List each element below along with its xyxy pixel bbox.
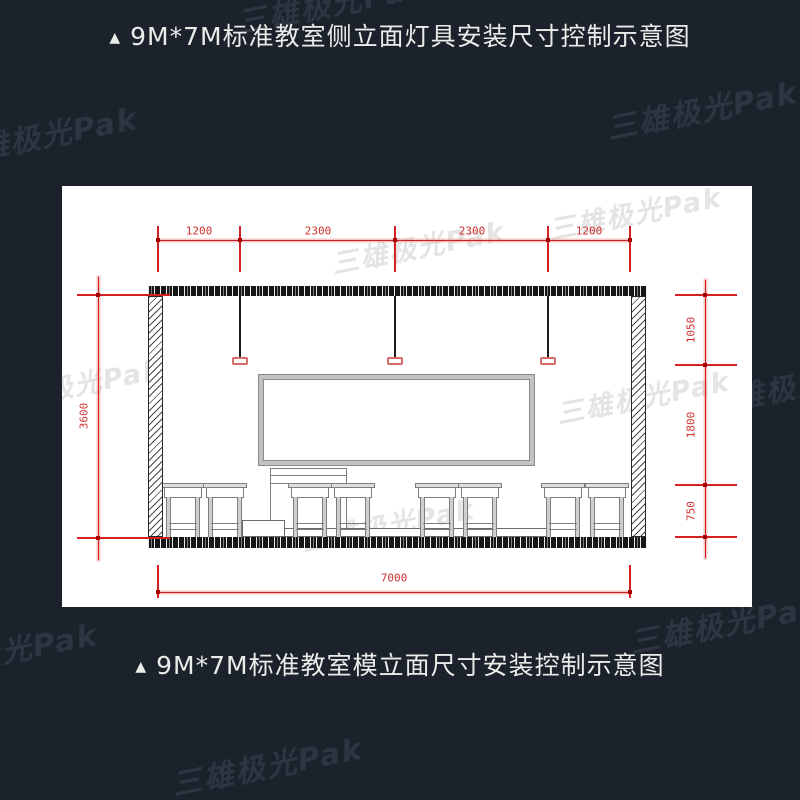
- desk-leg: [449, 497, 454, 537]
- dimension-node: [546, 238, 550, 242]
- ceiling-slab: [148, 286, 647, 296]
- desk-leg: [293, 497, 298, 537]
- dim-label-1200: 1200: [186, 225, 213, 238]
- lamp-fixture-icon: [387, 357, 403, 365]
- dimension-tick: [629, 226, 631, 272]
- desk-stretcher: [593, 523, 621, 530]
- desk-leg: [619, 497, 624, 537]
- desk-leg: [166, 497, 171, 537]
- dimension-tick: [547, 226, 549, 272]
- lamp-fixture-icon: [540, 357, 556, 365]
- podium-edge-line: [271, 475, 346, 476]
- dimension-line-bottom: [158, 592, 630, 593]
- watermark-logo: 三雄极光Pak: [0, 94, 142, 174]
- dim-label-1200: 1200: [576, 225, 603, 238]
- desk-leg: [420, 497, 425, 537]
- student-desk: [543, 483, 583, 537]
- desk-leg: [237, 497, 242, 537]
- desk-stretcher: [296, 523, 324, 530]
- dimension-node: [238, 238, 242, 242]
- dimension-node: [703, 483, 707, 487]
- desk-leg: [195, 497, 200, 537]
- dim-label-750: 750: [685, 501, 698, 521]
- dimension-node: [156, 238, 160, 242]
- dimension-tick: [77, 537, 170, 539]
- student-desk: [460, 483, 500, 537]
- pendant-rod: [547, 296, 549, 358]
- dim-label-7000: 7000: [381, 572, 408, 585]
- desk-leg: [208, 497, 213, 537]
- dim-label-1050: 1050: [685, 317, 698, 344]
- pendant-rod: [394, 296, 396, 358]
- dimension-node: [393, 238, 397, 242]
- desk-stretcher: [169, 523, 197, 530]
- desk-stretcher: [549, 523, 577, 530]
- desk-leg: [590, 497, 595, 537]
- bottom-title: ▲9M*7M标准教室模立面尺寸安装控制示意图: [0, 646, 800, 682]
- watermark-logo: 三雄极光Pak: [545, 186, 725, 247]
- dimension-node: [156, 590, 160, 594]
- desk-leg: [546, 497, 551, 537]
- drawing-panel: 三雄极光Pak 三雄极光Pak 三雄极光Pak 三雄极光Pak 三雄极光Pak: [62, 186, 752, 607]
- top-title-text: 9M*7M标准教室侧立面灯具安装尺寸控制示意图: [130, 22, 690, 51]
- desk-leg: [492, 497, 497, 537]
- desk-leg: [322, 497, 327, 537]
- desk-leg: [365, 497, 370, 537]
- desk-leg: [575, 497, 580, 537]
- dimension-node: [96, 293, 100, 297]
- dim-label-3600: 3600: [78, 403, 91, 430]
- desk-stretcher: [339, 523, 367, 530]
- dimension-line-left: [98, 277, 99, 560]
- dim-label-1800: 1800: [685, 412, 698, 439]
- bottom-title-text: 9M*7M标准教室模立面尺寸安装控制示意图: [156, 651, 664, 680]
- top-title: ▲9M*7M标准教室侧立面灯具安装尺寸控制示意图: [0, 17, 800, 53]
- dimension-tick: [77, 294, 170, 296]
- platform-step: [242, 520, 285, 537]
- lamp-fixture-icon: [232, 357, 248, 365]
- dim-label-2300: 2300: [305, 225, 332, 238]
- right-wall: [631, 296, 646, 537]
- student-desk: [333, 483, 373, 537]
- dimension-node: [703, 535, 707, 539]
- desk-stretcher: [466, 523, 494, 530]
- dimension-node: [628, 590, 632, 594]
- watermark-logo: 三雄极光Pak: [168, 724, 367, 800]
- screenshot-canvas: 三雄极光Pak 三雄极光Pak 三雄极光Pak 三雄极光Pak 三雄极光Pak …: [0, 0, 800, 800]
- desk-stretcher: [211, 523, 239, 530]
- dimension-node: [703, 363, 707, 367]
- desk-leg: [463, 497, 468, 537]
- student-desk: [417, 483, 457, 537]
- dimension-tick: [157, 226, 159, 272]
- dimension-tick: [394, 226, 396, 272]
- blackboard: [258, 374, 535, 466]
- left-wall: [148, 296, 163, 537]
- dim-label-2300: 2300: [459, 225, 486, 238]
- pendant-rod: [239, 296, 241, 358]
- floor-slab: [148, 537, 647, 548]
- dimension-node: [96, 536, 100, 540]
- student-desk: [290, 483, 330, 537]
- student-desk: [205, 483, 245, 537]
- student-desk: [163, 483, 203, 537]
- dimension-tick: [239, 226, 241, 272]
- triangle-marker-icon: ▲: [135, 659, 147, 675]
- desk-stretcher: [423, 523, 451, 530]
- watermark-logo: 三雄极光Pak: [328, 210, 508, 282]
- student-desk: [587, 483, 627, 537]
- dimension-node: [628, 238, 632, 242]
- triangle-marker-icon: ▲: [109, 30, 121, 46]
- watermark-logo: 三雄极光Pak: [603, 68, 800, 148]
- desk-leg: [336, 497, 341, 537]
- teaching-platform: [242, 528, 547, 537]
- dimension-line-right: [705, 280, 706, 558]
- dimension-node: [703, 293, 707, 297]
